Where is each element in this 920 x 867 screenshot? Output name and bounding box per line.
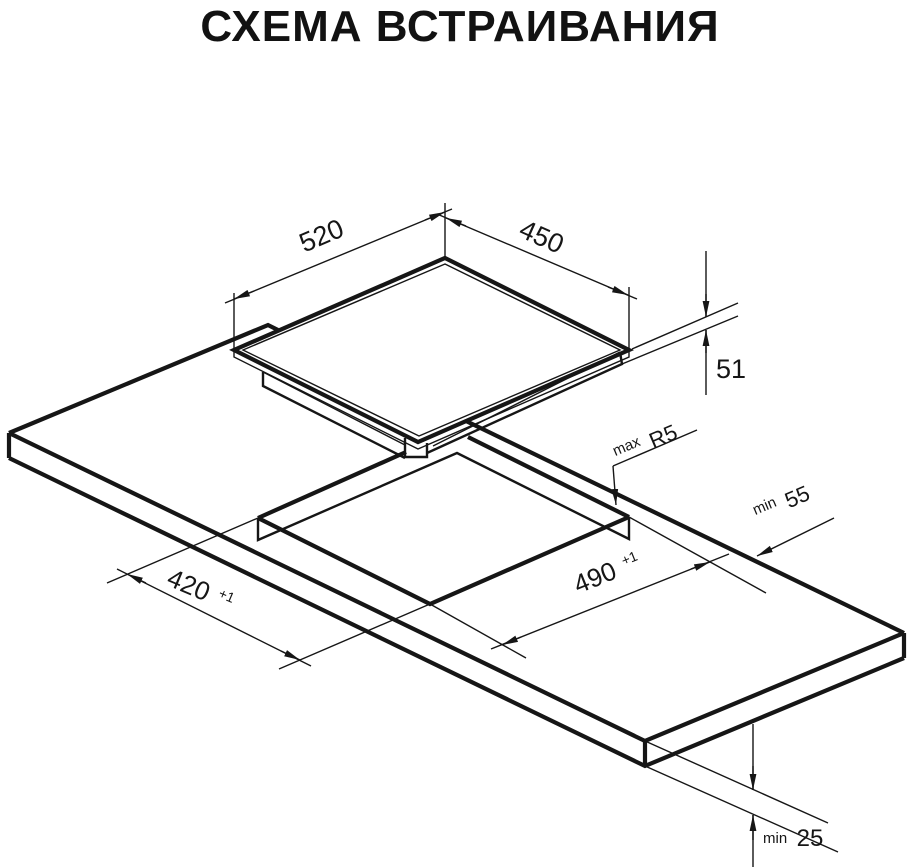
dimension-top-depth: 450 — [437, 214, 637, 351]
dim-490-tolerance: +1 — [619, 548, 640, 569]
installation-scheme-page: СХЕМА ВСТРАИВАНИЯ — [0, 0, 920, 867]
dim-520-label: 520 — [295, 213, 348, 258]
installation-diagram: 520 450 51 max R5 — [0, 0, 920, 867]
dim-25-prefix: min — [763, 830, 787, 847]
worktop — [9, 325, 904, 766]
hob-glass-top — [234, 258, 629, 442]
dim-520-arrow-left — [234, 291, 254, 299]
dimension-cutout-length: 490 +1 — [430, 517, 766, 658]
dim-55-label: min 55 — [750, 480, 813, 526]
dim-420-value: 420 — [163, 562, 215, 607]
cutout-back-right-edge — [468, 437, 629, 517]
dim-420-arrow-right — [281, 651, 300, 660]
dim-420-arrow-left — [127, 574, 146, 583]
dimension-cutout-width: 420 +1 — [107, 518, 430, 669]
dim-490-arrow-left — [502, 637, 521, 645]
dim-r5-label: max R5 — [610, 418, 681, 468]
worktop-front-top-edges — [9, 433, 904, 741]
dim-51-label: 51 — [716, 354, 746, 384]
dim-450-arrow-right — [608, 287, 628, 295]
dimension-cutout-radius: max R5 — [610, 418, 697, 505]
dimension-worktop-thickness: min 25 — [645, 724, 838, 867]
worktop-back-left-edge — [9, 325, 278, 433]
worktop-back-right-edge — [466, 421, 904, 633]
dimension-hob-height: 51 — [622, 251, 746, 395]
dim-55-leader-arrow — [757, 518, 834, 556]
hob — [234, 258, 629, 458]
cutout-inner-walls — [258, 453, 629, 540]
dim-450-label: 450 — [515, 214, 568, 260]
dim-420-label: 420 +1 — [163, 562, 238, 617]
dim-25-label: min 25 — [763, 825, 823, 852]
dim-r5-value: R5 — [645, 419, 681, 453]
dim-r5-leader-arrow — [613, 466, 616, 505]
dim-490-value: 490 — [569, 555, 620, 599]
hob-glass-inner-bevel — [243, 264, 620, 436]
dim-25-value: 25 — [797, 825, 824, 852]
dim-420-tolerance: +1 — [216, 585, 237, 606]
dim-55-prefix: min — [750, 494, 779, 519]
dim-420-extension-lines — [107, 518, 430, 669]
dimension-rear-clearance: min 55 — [750, 480, 834, 556]
hob-body-outline — [263, 352, 622, 458]
cutout-front-edges — [258, 517, 629, 604]
dim-450-arrow-left — [446, 218, 466, 226]
dim-55-value: 55 — [781, 480, 813, 513]
dim-490-arrow-right — [691, 562, 710, 569]
dim-490-label: 490 +1 — [569, 546, 644, 600]
